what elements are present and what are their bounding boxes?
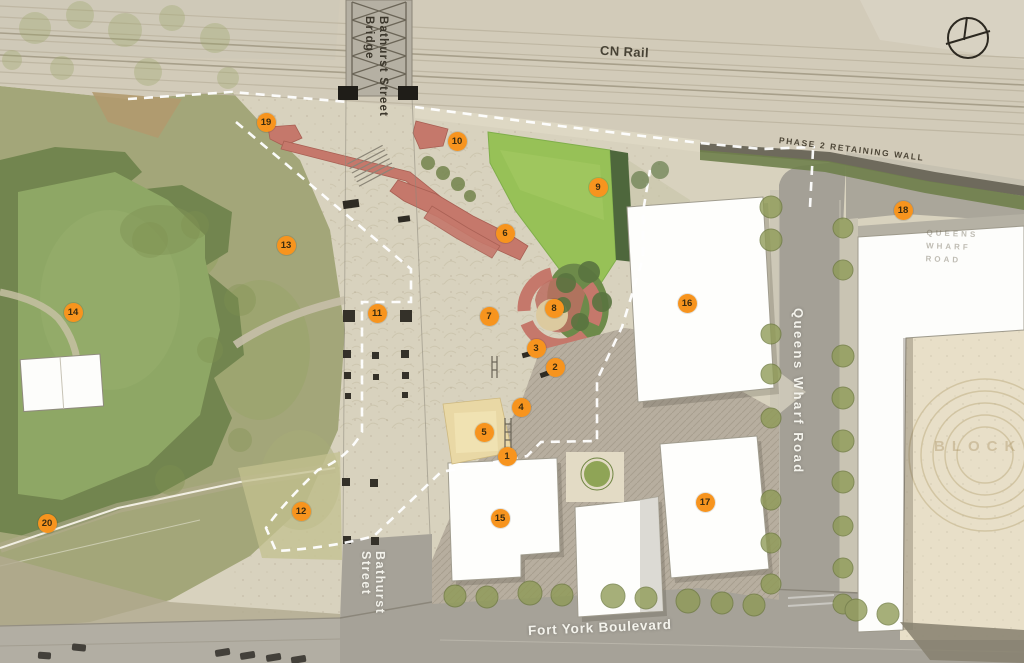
bridge-bearing	[398, 86, 418, 100]
site-plan: CN Rail Bathurst Street Bridge PHASE 2 R…	[0, 0, 1024, 663]
midblock-courtyard	[566, 452, 624, 502]
existing-block-east	[858, 214, 1024, 663]
fort-building	[20, 354, 103, 411]
queens-wharf-road	[779, 161, 846, 663]
fort-york-park	[0, 86, 345, 634]
building-17	[660, 436, 773, 583]
site-plan-graphic	[0, 0, 1024, 663]
bridge-bearing	[338, 86, 358, 100]
building-16	[627, 197, 779, 408]
